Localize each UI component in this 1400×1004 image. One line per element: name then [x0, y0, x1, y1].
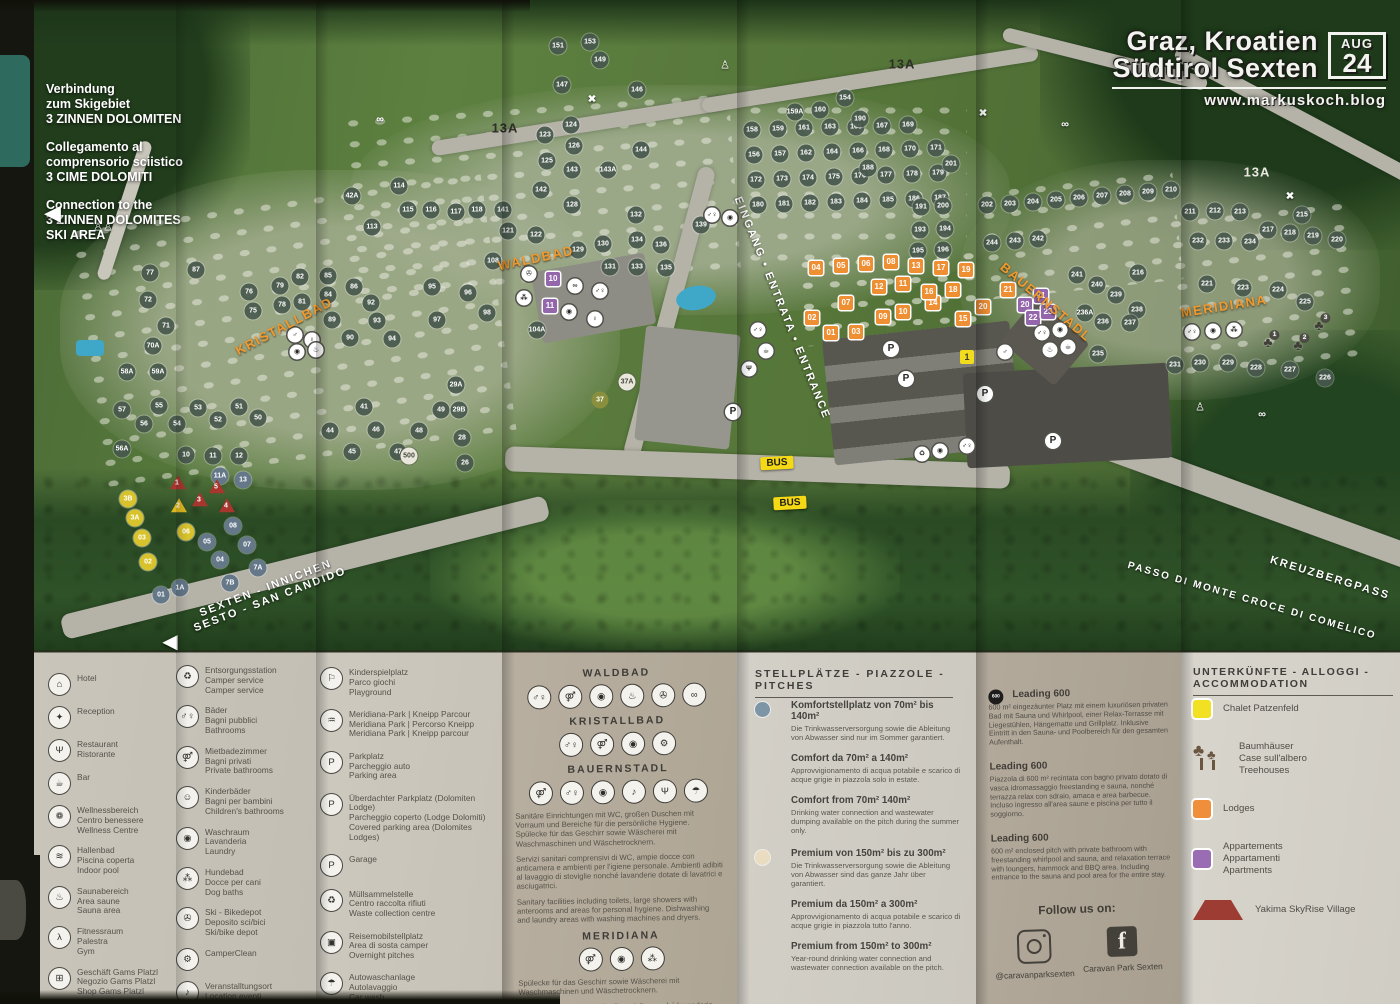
pitch-marker: 55 [151, 398, 168, 415]
pitch-marker: 135 [658, 260, 675, 277]
pitch-marker: 159A [787, 104, 804, 121]
legend-pictogram-icon: λ [48, 926, 71, 949]
legend-pictogram-icon: ☕ [48, 772, 71, 795]
leading-sections: 600Leading 600600 m² eingezäunter Platz … [988, 686, 1172, 896]
legend-panel-pitches: STELLPLÄTZE - PIAZZOLE - PITCHES Komfort… [737, 652, 976, 1004]
facebook-icon: f [1106, 926, 1137, 957]
trail-icon: ✖ [587, 95, 596, 106]
pitch-marker: 178 [904, 166, 921, 183]
pitch-marker: 144 [633, 142, 650, 159]
pitch-marker: 124 [563, 117, 580, 134]
pitch-marker: 210 [1163, 182, 1180, 199]
pitch-marker: 96 [460, 285, 477, 302]
pitch-marker: 28 [454, 430, 471, 447]
pitch-marker: 159 [770, 121, 787, 138]
pitch-marker: 227 [1282, 362, 1299, 379]
chalet-marker: 03 [134, 530, 151, 547]
sanitary-icon-row: ♂♀⚤◉⚙ [510, 730, 725, 758]
legend-pictogram-icon: ✦ [48, 706, 71, 729]
facebook-block: f Caravan Park Sexten [1082, 925, 1163, 974]
sanitary-pictogram-icon: Ψ [653, 779, 677, 803]
accommodation-label: Yakima SkyRise Village [1255, 904, 1355, 916]
facility-icon: ◉ [290, 345, 305, 360]
pitch-marker: 82 [292, 269, 309, 286]
facility-column-2: ♻EntsorgungsstationCamper serviceCamper … [176, 664, 312, 1004]
treehouse-marker: ♣2 [1293, 338, 1302, 352]
pitch-marker: 241 [1069, 267, 1086, 284]
legend-item-label: WaschraumLavanderiaLaundry [205, 826, 249, 857]
facility-icon: ☕ [759, 344, 774, 359]
legend-item: ❁WellnessbereichCentro benessereWellness… [48, 804, 182, 835]
fold-crease [737, 0, 757, 1004]
pitch-marker: 212 [1207, 203, 1224, 220]
legend-item-label: ParkplatzParcheggio autoParking area [349, 750, 410, 781]
accommodation-item: AppartementsAppartamentiApartments [1193, 841, 1355, 877]
pitch-marker: 45 [344, 444, 361, 461]
pitch-marker: 236A [1077, 305, 1094, 322]
photo-background [0, 0, 530, 12]
pitch-marker: 29B [451, 402, 468, 419]
pitch-marker: 12 [231, 448, 248, 465]
legend-panel-sanitary: WALDBAD♂♀⚤◉♨✇∞KRISTALLBAD♂♀⚤◉⚙BAUERNSTAD… [502, 652, 737, 1004]
legend-item-label: CamperClean [205, 947, 257, 959]
legend-item: ✇Ski - BikedepotDeposito sci/biciSki/bik… [176, 906, 312, 937]
pitch-marker: 196 [935, 242, 952, 259]
sanitary-pictogram-icon: ⚤ [529, 781, 553, 805]
pitch-marker: 243 [1007, 233, 1024, 250]
pitch-marker: 203 [1002, 196, 1019, 213]
fold-crease [502, 0, 522, 1004]
legend-panel-facilities-2: ⚐KinderspielplatzParco giochiPlayground♒… [316, 652, 502, 1004]
legend-panel-accommodation: UNTERKÜNFTE - ALLOGGI - ACCOMMODATION Ch… [1181, 652, 1400, 1004]
facility-icon: ♂♀ [593, 284, 608, 299]
pitch-marker: 171 [928, 140, 945, 157]
pitch-marker: 143 [564, 162, 581, 179]
pitch-marker: 188 [860, 160, 877, 177]
chalet-marker: 1 [960, 350, 974, 364]
pitch-item: Comfort da 70m² a 140m²Approvvigionament… [791, 753, 961, 784]
parking-icon: P [1045, 433, 1061, 449]
pitch-marker: 235 [1090, 346, 1107, 363]
pitch-marker: 70A [145, 338, 162, 355]
pitch-marker: 157 [772, 146, 789, 163]
fold-crease [316, 0, 336, 1004]
pitch-marker: 236 [1095, 314, 1112, 331]
ski-note-group: Verbindungzum Skigebiet3 ZINNEN DOLOMITE… [46, 82, 183, 127]
pitch-marker: 136 [653, 237, 670, 254]
pitch-marker: 149 [592, 52, 609, 69]
facility-icon: ♂♀ [705, 208, 720, 223]
legend-pictogram-icon: ≋ [48, 845, 71, 868]
pitch-marker: 57 [114, 402, 131, 419]
ski-note-group: Connection to the3 ZINNEN DOLOMITESSKI A… [46, 198, 183, 243]
legend-item: PGarage [320, 853, 498, 877]
lodge-marker: 18 [946, 283, 960, 297]
pitch-marker: 42A [344, 188, 361, 205]
leading-item: Leading 600Piazzola di 600 m² recintata … [989, 758, 1170, 819]
accommodation-label: Chalet Patzenfeld [1223, 703, 1299, 715]
sanitary-pictogram-icon: ⁂ [640, 946, 664, 970]
sanitary-pictogram-icon: ⚤ [590, 732, 614, 756]
sanitary-section-title: KRISTALLBAD [510, 713, 725, 729]
legend-item: ☕Bar [48, 771, 182, 795]
pitch-marker: 51 [231, 399, 248, 416]
pitch-marker: 115 [400, 202, 417, 219]
legend-item-label: HallenbadPiscina copertaIndoor pool [77, 844, 134, 875]
photo-watermark: Graz, Kroatien Südtirol Sexten AUG 24 ww… [1112, 28, 1386, 109]
pitch-marker: 160 [812, 102, 829, 119]
pitch-marker: 37 [592, 392, 609, 409]
sanitary-pictogram-icon: ✇ [651, 683, 675, 707]
pitch-marker: 97 [429, 312, 446, 329]
pitch-group: Premium von 150m² bis zu 300m²Die Trinkw… [755, 848, 961, 972]
sanitary-pictogram-icon: ⚤ [578, 948, 602, 972]
treehouse-marker: ♣1 [1263, 335, 1272, 349]
lodge-marker: 05 [834, 259, 848, 273]
sanitary-section-title: WALDBAD [509, 665, 724, 681]
legend-pictogram-icon: Ψ [48, 739, 71, 762]
legend-item: PÜberdachter Parkplatz (Dolomiten Lodge)… [320, 792, 498, 843]
apartment-marker: 10 [546, 272, 560, 286]
pitch-marker: 118 [469, 202, 486, 219]
pitch-marker: 218 [1282, 225, 1299, 242]
follow-us-heading: Follow us on: [989, 899, 1165, 919]
pitch-marker: 195 [910, 243, 927, 260]
pitch-items: Premium von 150m² bis zu 300m²Die Trinkw… [791, 848, 961, 972]
lodge-marker: 11 [896, 277, 910, 291]
legend-item: ⚙CamperClean [176, 947, 312, 971]
pitch-marker: 225 [1297, 294, 1314, 311]
pitch-marker: 167 [874, 118, 891, 135]
pitch-marker: 113 [364, 219, 381, 236]
facility-column-3: ⚐KinderspielplatzParco giochiPlayground♒… [320, 666, 498, 1003]
pitch-marker: 26 [457, 455, 474, 472]
pitch-marker: 142 [533, 182, 550, 199]
tent-marker: 5 [209, 479, 225, 493]
pitch-marker: 153 [582, 34, 599, 51]
leading-item: 600Leading 600600 m² eingezäunter Platz … [988, 686, 1169, 747]
pitch-marker: 117 [448, 204, 465, 221]
pitch-marker: 224 [1270, 282, 1287, 299]
legend-item-label: WellnessbereichCentro benessereWellness … [77, 804, 144, 835]
legend-item: ♂♀BäderBagni pubbliciBathrooms [176, 704, 312, 735]
trail-icon: ✖ [1285, 192, 1294, 203]
lodge-marker: 03 [849, 325, 863, 339]
legend-item: ⌂Hotel [48, 672, 182, 696]
pitch-marker: 56A [114, 441, 131, 458]
pitch-marker: 185 [880, 192, 897, 209]
pitch-marker: 217 [1260, 222, 1277, 239]
pitch-marker: 01 [153, 587, 170, 604]
leading-item: Leading 600600 m² enclosed pitch with pr… [991, 830, 1172, 882]
accommodation-items: Chalet Patzenfeld♣♣BaumhäuserCase sull'a… [1193, 700, 1355, 920]
pitch-marker: 41 [356, 399, 373, 416]
pitch-marker: 29A [448, 377, 465, 394]
legend-panel-facilities-1: ⌂Hotel✦ReceptionΨRestaurantRistorante☕Ba… [34, 652, 316, 1004]
pitch-marker: 104A [529, 322, 546, 339]
lodge-marker: 12 [872, 280, 886, 294]
legend-item-label: KinderspielplatzParco giochiPlayground [349, 666, 408, 697]
pitch-marker: 122 [528, 227, 545, 244]
pitch-marker: 205 [1048, 192, 1065, 209]
legend-item-label: MietbadezimmerBagni privatiPrivate bathr… [205, 745, 273, 776]
fold-crease [176, 0, 196, 1004]
pitch-marker: 183 [828, 194, 845, 211]
date-badge: AUG 24 [1328, 32, 1386, 79]
accommodation-item: ♣♣BaumhäuserCase sull'alberoTreehouses [1193, 741, 1355, 777]
pitch-marker: 201 [943, 156, 960, 173]
watermark-title: Graz, Kroatien Südtirol Sexten [1112, 28, 1318, 82]
pitch-marker: 52 [210, 412, 227, 429]
accommodation-label: BaumhäuserCase sull'alberoTreehouses [1239, 741, 1307, 777]
sanitary-pictogram-icon: ♂♀ [559, 733, 583, 757]
pitch-marker: 07 [239, 537, 256, 554]
pitch-marker: 151 [550, 38, 567, 55]
photo-background [0, 990, 560, 1004]
pitch-marker: 11 [205, 448, 222, 465]
lodge-marker: 13 [909, 259, 923, 273]
legend-item: ≋HallenbadPiscina copertaIndoor pool [48, 844, 182, 875]
parking-icon: P [898, 371, 914, 387]
pitch-marker: 90 [342, 330, 359, 347]
road-label: 13A [889, 57, 916, 72]
pitch-marker: 37A [619, 374, 636, 391]
pitch-marker: 56 [136, 416, 153, 433]
pitch-marker: 92 [363, 295, 380, 312]
legend-item: ♒Meridiana-Park | Kneipp ParcourMeridian… [320, 708, 498, 739]
pitch-marker: 173 [774, 171, 791, 188]
legend-item: PParkplatzParcheggio autoParking area [320, 750, 498, 781]
legend-item-label: KinderbäderBagni per bambiniChildren's b… [205, 785, 284, 816]
facility-icon: ◉ [562, 305, 577, 320]
trail-icon: ∞ [1061, 120, 1069, 131]
legend-pictogram-icon: ❁ [48, 805, 71, 828]
sanitary-section-title: MERIDIANA [513, 928, 728, 944]
facility-icon: ✇ [522, 267, 537, 282]
pitch-marker: 242 [1030, 231, 1047, 248]
pitch-items: Komfortstellplatz von 70m² bis 140m²Die … [791, 700, 961, 835]
sanitary-pictogram-icon: ⚙ [652, 731, 676, 755]
pitch-marker: 133 [629, 259, 646, 276]
apartment-marker: 11 [543, 299, 557, 313]
fold-crease [1181, 0, 1201, 1004]
apartment-marker: 20 [1018, 298, 1032, 312]
pitch-marker: 126 [566, 138, 583, 155]
fold-crease [976, 0, 996, 1004]
sanitary-section-title: BAUERNSTADL [510, 761, 725, 777]
legend-panel-leading: 600Leading 600600 m² eingezäunter Platz … [976, 652, 1181, 1004]
pitch-marker: 93 [369, 313, 386, 330]
pitch-marker: 182 [802, 195, 819, 212]
pitch-marker: 200 [935, 198, 952, 215]
pitch-marker: 161 [796, 120, 813, 137]
social-block: Follow us on: @caravanparksexten f Carav… [989, 899, 1168, 981]
sanitary-pictogram-icon: ◉ [621, 732, 645, 756]
legend-item-label: HundebadDocce per caniDog baths [205, 866, 261, 897]
pitch-marker: 240 [1089, 277, 1106, 294]
legend-item: ♻EntsorgungsstationCamper serviceCamper … [176, 664, 312, 695]
legend-item: ♨SaunabereichArea sauneSauna area [48, 885, 182, 916]
tent-marker: 4 [219, 498, 235, 512]
pitch-marker: 233 [1216, 233, 1233, 250]
legend-item: ✦Reception [48, 705, 182, 729]
legend-item-label: Hotel [77, 672, 97, 684]
pitch-marker: 226 [1317, 370, 1334, 387]
sanitary-icon-row: ♂♀⚤◉♨✇∞ [509, 682, 724, 710]
road-label: 13A [1244, 165, 1271, 180]
sanitary-paragraph: Sanitäre Einrichtungen mit WC, großen Du… [515, 808, 723, 848]
lodge-marker: 09 [876, 310, 890, 324]
pitch-marker: 154 [837, 90, 854, 107]
pitch-marker: 98 [479, 305, 496, 322]
instagram-handle: @caravanparksexten [995, 968, 1075, 981]
pitch-marker: 146 [629, 82, 646, 99]
trail-icon: ♙ [720, 61, 730, 72]
pitch-marker: 143A [600, 162, 617, 179]
facility-icon: ◉ [723, 211, 738, 226]
accommodation-item: Yakima SkyRise Village [1193, 900, 1355, 920]
pitch-marker: 94 [384, 331, 401, 348]
pitch-marker: 219 [1305, 228, 1322, 245]
chalet-marker: 3B [120, 491, 137, 508]
sanitary-sections: WALDBAD♂♀⚤◉♨✇∞KRISTALLBAD♂♀⚤◉⚙BAUERNSTAD… [509, 658, 731, 1004]
lodge-marker: 15 [956, 312, 970, 326]
reception-building [634, 325, 741, 449]
accommodation-header: UNTERKÜNFTE - ALLOGGI - ACCOMMODATION [1193, 666, 1393, 696]
pitch-marker: 86 [346, 279, 363, 296]
lodge-marker: 16 [922, 285, 936, 299]
pitch-marker: 239 [1108, 287, 1125, 304]
pitch-marker: 50 [250, 410, 267, 427]
pitch-marker: 128 [564, 197, 581, 214]
accommodation-label: Lodges [1223, 803, 1254, 815]
pitch-marker: 169 [900, 117, 917, 134]
pitch-marker: 229 [1220, 355, 1237, 372]
legend-item-label: Bar [77, 771, 90, 783]
pitch-type-bullet [755, 850, 770, 865]
legend-item-label: BäderBagni pubbliciBathrooms [205, 704, 257, 735]
pitch-marker: 215 [1294, 207, 1311, 224]
lodge-marker: 10 [896, 305, 910, 319]
pitch-type-bullet [755, 702, 770, 717]
pitches-header: STELLPLÄTZE - PIAZZOLE - PITCHES [755, 668, 953, 698]
legend-item: ♻MüllsammelstelleCentro raccolta rifiuti… [320, 888, 498, 919]
lodge-marker: 19 [959, 263, 973, 277]
legend-item: ☺KinderbäderBagni per bambiniChildren's … [176, 785, 312, 816]
pitch-marker: 221 [1199, 276, 1216, 293]
pitch-marker: 166 [850, 143, 867, 160]
legend-item-label: FitnessraumPalestraGym [77, 925, 123, 956]
pitch-marker: 193 [912, 222, 929, 239]
sanitary-pictogram-icon: ◉ [609, 947, 633, 971]
pitch-marker: 220 [1329, 232, 1346, 249]
facility-icon: ◉ [1206, 324, 1221, 339]
legend-item-label: SaunabereichArea sauneSauna area [77, 885, 129, 916]
pitch-item: Komfortstellplatz von 70m² bis 140m²Die … [791, 700, 961, 742]
legend-item: ⚐KinderspielplatzParco giochiPlayground [320, 666, 498, 697]
lodge-marker: 01 [824, 326, 838, 340]
facility-icon: ☕ [1061, 340, 1076, 355]
facility-icon: ♂♀ [960, 439, 975, 454]
pitch-marker: 163 [822, 119, 839, 136]
pitch-group: Komfortstellplatz von 70m² bis 140m²Die … [755, 700, 961, 835]
legend-item: ΨRestaurantRistorante [48, 738, 182, 762]
pitch-marker: 204 [1025, 194, 1042, 211]
legend-item-label: RestaurantRistorante [77, 738, 118, 760]
pitch-marker: 04 [212, 552, 229, 569]
background-object [0, 55, 30, 167]
pitch-marker: 147 [554, 77, 571, 94]
facility-icon: ⁂ [1227, 323, 1242, 338]
lodge-marker: 02 [805, 311, 819, 325]
sanitary-pictogram-icon: ♪ [622, 780, 646, 804]
pitch-marker: 164 [824, 144, 841, 161]
pitch-marker: 76 [241, 284, 258, 301]
pitch-marker: 228 [1248, 360, 1265, 377]
accommodation-item: Chalet Patzenfeld [1193, 700, 1355, 718]
sanitary-paragraph: Sanitary facilities including toilets, l… [517, 894, 724, 925]
facility-column-1: ⌂Hotel✦ReceptionΨRestaurantRistorante☕Ba… [48, 672, 182, 1004]
pitch-marker: 48 [411, 423, 428, 440]
sanitary-pictogram-icon: ◉ [589, 684, 613, 708]
campground-map-photo: 7787727170A76798285757881848692899093949… [0, 0, 1400, 1004]
pitch-marker: 500 [401, 448, 418, 465]
pitch-marker: 181 [776, 196, 793, 213]
legend-item-label: MüllsammelstelleCentro raccolta rifiutiW… [349, 888, 435, 919]
watermark-url: www.markuskoch.blog [1112, 87, 1386, 109]
lodge-marker: 08 [884, 255, 898, 269]
legend-item: ▣ReisemobilstellplatzArea di sosta campe… [320, 930, 498, 961]
legend-pictogram-icon: ⊞ [48, 967, 71, 990]
pitch-item: Comfort from 70m² 140m²Drinking water co… [791, 795, 961, 835]
pitch-marker: 59A [150, 364, 167, 381]
legend-item: ◉WaschraumLavanderiaLaundry [176, 826, 312, 857]
pitch-marker: 95 [424, 279, 441, 296]
trail-icon: ∞ [376, 115, 384, 126]
sanitary-pictogram-icon: ◉ [591, 780, 615, 804]
trail-icon: ∞ [1258, 410, 1266, 421]
accommodation-item: Lodges [1193, 800, 1355, 818]
apartment-marker: 22 [1026, 311, 1040, 325]
legend-pictogram-icon: ♨ [48, 886, 71, 909]
sanitary-pictogram-icon: ⚤ [558, 685, 582, 709]
chalet-marker: 02 [140, 554, 157, 571]
pitch-marker: 132 [628, 207, 645, 224]
sanitary-paragraph: Servizi sanitari comprensivi di WC, ampi… [516, 851, 724, 891]
pitch-marker: 7A [250, 560, 267, 577]
pitch-marker: 114 [391, 178, 408, 195]
legend-item-label: EntsorgungsstationCamper serviceCamper s… [205, 664, 277, 695]
pitch-marker: 130 [595, 236, 612, 253]
pitch-marker: 237 [1122, 315, 1139, 332]
pitch-marker: 191 [913, 199, 930, 216]
legend-item-label: Reception [77, 705, 115, 717]
legend-pictogram-icon: ⌂ [48, 673, 71, 696]
pitch-marker: 116 [423, 202, 440, 219]
background-object [0, 880, 26, 940]
pitch-marker: 131 [602, 259, 619, 276]
pitch-marker: 206 [1071, 190, 1088, 207]
facility-icon: ◉ [933, 444, 948, 459]
treehouse-marker: ♣3 [1314, 318, 1323, 332]
pitch-marker: 75 [245, 303, 262, 320]
pitch-marker: 216 [1130, 265, 1147, 282]
instagram-block: @caravanparksexten [994, 928, 1075, 981]
legend-item-label: Meridiana-Park | Kneipp ParcourMeridiana… [349, 708, 474, 739]
facebook-handle: Caravan Park Sexten [1083, 961, 1163, 974]
pitch-marker: 71 [158, 318, 175, 335]
chalet-marker: 3A [127, 510, 144, 527]
